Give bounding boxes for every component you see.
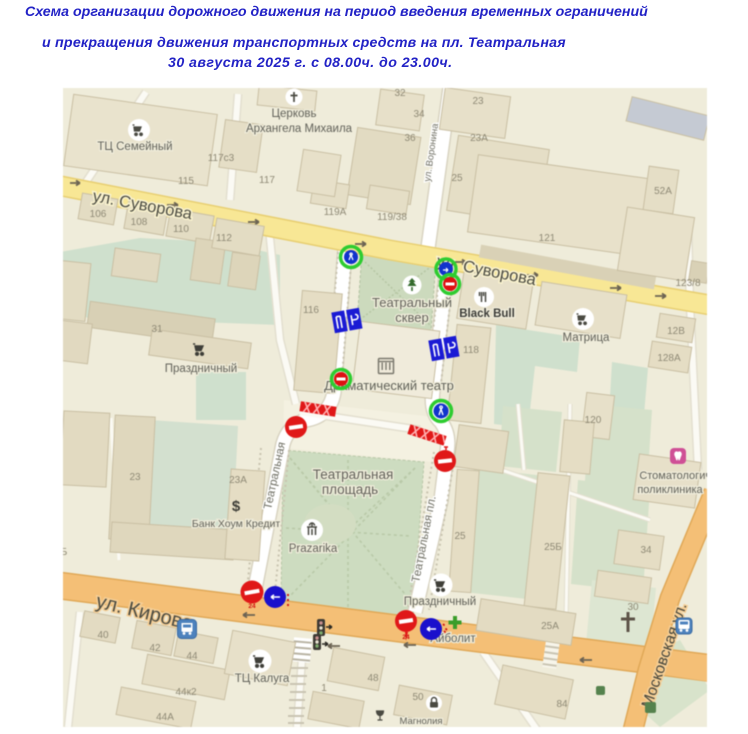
svg-text:44А: 44А [156, 712, 174, 723]
svg-text:115: 115 [178, 176, 194, 187]
svg-text:40: 40 [97, 630, 109, 641]
svg-text:123/8: 123/8 [675, 278, 700, 289]
svg-text:34: 34 [413, 109, 425, 120]
svg-text:50: 50 [412, 692, 424, 703]
svg-text:12В: 12В [667, 326, 685, 337]
svg-text:24: 24 [402, 634, 410, 641]
svg-text:36: 36 [404, 133, 416, 144]
svg-text:Б: Б [61, 547, 68, 558]
svg-text:84: 84 [556, 699, 568, 710]
svg-text:110: 110 [173, 224, 189, 235]
svg-text:116: 116 [303, 305, 319, 316]
svg-text:44: 44 [186, 651, 198, 662]
svg-text:Матрица: Матрица [563, 332, 611, 344]
svg-text:23А: 23А [470, 133, 488, 144]
svg-text:48: 48 [367, 673, 379, 684]
svg-text:52А: 52А [654, 186, 672, 197]
svg-text:108: 108 [131, 217, 148, 228]
svg-text:31: 31 [151, 324, 163, 335]
svg-text:Black Bull: Black Bull [459, 308, 515, 320]
svg-text:44к2: 44к2 [175, 687, 196, 698]
svg-text:42: 42 [149, 643, 161, 654]
svg-text:Праздничный: Праздничный [165, 363, 237, 375]
svg-text:поликлиника: поликлиника [637, 484, 703, 496]
svg-text:24: 24 [248, 603, 256, 610]
svg-text:128А: 128А [657, 353, 681, 364]
svg-text:117: 117 [259, 175, 275, 186]
svg-text:1: 1 [321, 683, 327, 694]
svg-text:$: $ [232, 498, 241, 515]
svg-text:Театральная: Театральная [313, 467, 394, 482]
svg-text:25А: 25А [541, 621, 559, 632]
svg-text:Театральный: Театральный [372, 295, 452, 310]
svg-text:106: 106 [90, 209, 107, 220]
svg-text:25: 25 [454, 531, 466, 542]
svg-text:ТЦ Семейный: ТЦ Семейный [97, 141, 172, 153]
svg-text:121: 121 [539, 233, 556, 244]
svg-text:119/38: 119/38 [377, 212, 407, 223]
svg-text:32: 32 [394, 88, 406, 99]
svg-text:23: 23 [472, 96, 484, 107]
svg-text:25Б: 25Б [544, 542, 562, 553]
svg-text:сквер: сквер [395, 310, 428, 325]
svg-text:Банк Хоум Кредит: Банк Хоум Кредит [192, 518, 280, 530]
svg-text:119А: 119А [324, 207, 347, 218]
svg-text:30: 30 [627, 602, 639, 613]
svg-text:118: 118 [463, 345, 479, 356]
svg-text:Стоматологичес: Стоматологичес [639, 470, 723, 482]
svg-text:112: 112 [216, 233, 232, 244]
svg-text:23А: 23А [229, 475, 247, 486]
svg-text:117с3: 117с3 [208, 153, 235, 164]
svg-text:23: 23 [129, 472, 141, 483]
svg-text:ТЦ Калуга: ТЦ Калуга [235, 673, 290, 685]
svg-text:Церковь: Церковь [272, 108, 317, 120]
svg-text:120: 120 [585, 415, 602, 426]
svg-text:25: 25 [451, 173, 463, 184]
svg-text:Магнолия: Магнолия [399, 716, 442, 727]
svg-text:Prazarika: Prazarika [289, 543, 338, 555]
svg-text:Праздничный: Праздничный [404, 596, 476, 608]
svg-text:площадь: площадь [322, 482, 378, 497]
svg-text:Архангела Михаила: Архангела Михаила [246, 123, 353, 135]
svg-text:34: 34 [640, 545, 652, 556]
